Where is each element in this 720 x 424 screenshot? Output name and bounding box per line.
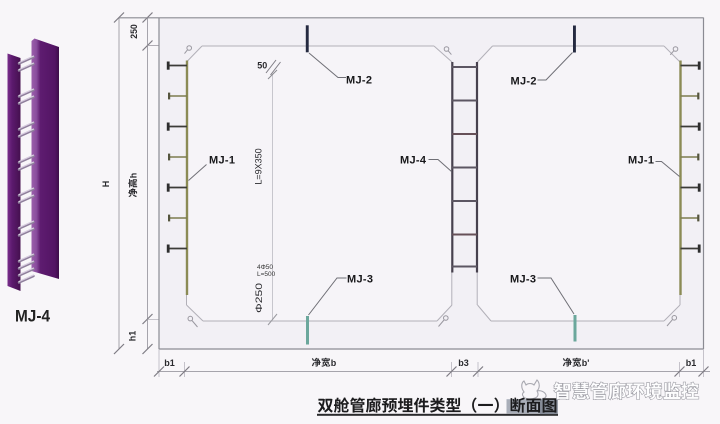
svg-text:MJ-4: MJ-4: [400, 155, 427, 167]
svg-text:b1: b1: [686, 358, 697, 368]
svg-text:b1: b1: [164, 358, 175, 368]
svg-text:MJ-2: MJ-2: [346, 75, 372, 87]
svg-text:L=9X350: L=9X350: [254, 148, 264, 184]
svg-text:L=500: L=500: [257, 271, 276, 278]
svg-text:MJ-4: MJ-4: [15, 308, 51, 326]
svg-text:b: b: [331, 358, 337, 368]
svg-text:MJ-3: MJ-3: [347, 274, 373, 286]
svg-text:MJ-3: MJ-3: [510, 274, 536, 286]
svg-text:h1: h1: [128, 331, 138, 342]
svg-text:MJ-1: MJ-1: [209, 155, 235, 167]
svg-text:250: 250: [129, 24, 139, 39]
svg-text:h: h: [128, 173, 138, 179]
svg-text:MJ-2: MJ-2: [511, 76, 537, 88]
svg-text:MJ-1: MJ-1: [628, 155, 654, 167]
svg-text:4Φ50: 4Φ50: [257, 264, 273, 271]
svg-text:Φ250: Φ250: [254, 283, 264, 313]
svg-text:H: H: [101, 181, 111, 188]
svg-text:b': b': [582, 358, 590, 368]
svg-text:b3: b3: [458, 358, 469, 368]
svg-text:50: 50: [257, 60, 267, 70]
